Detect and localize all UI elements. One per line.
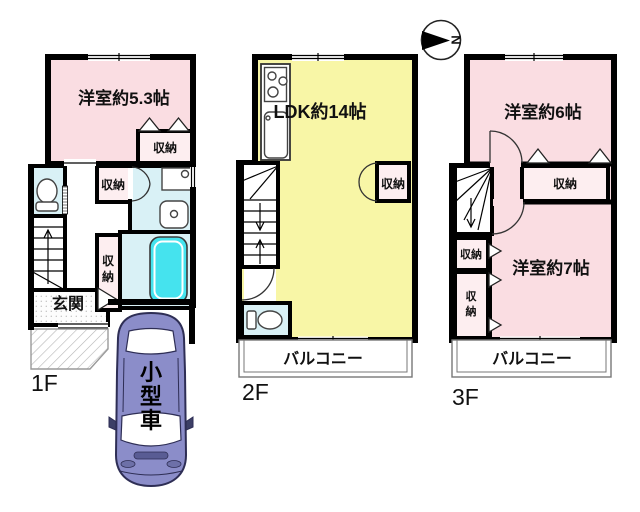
room-label-bedroom-1f: 洋室約5.3帖	[78, 88, 170, 108]
stairs-3f	[455, 166, 492, 234]
porch	[31, 329, 108, 369]
room-label-bedroom7: 洋室約7帖	[512, 258, 589, 278]
toilet-icon	[258, 311, 282, 329]
floor-label-3f: 3F	[452, 384, 479, 410]
toilet-tank	[247, 311, 256, 329]
floor-label-1f: 1F	[31, 370, 58, 396]
hall-2f	[244, 269, 276, 301]
room-label-bedroom6: 洋室約6帖	[504, 102, 581, 122]
car-illustration: 小型車	[109, 313, 193, 486]
car-headlight	[121, 461, 135, 468]
window	[190, 167, 196, 187]
garage-wall	[189, 302, 195, 344]
balcony-label-2f: バルコニー	[283, 350, 363, 368]
closet-label: 収納	[101, 177, 125, 192]
closet-label: 収納	[381, 176, 405, 191]
entrance-label: 玄関	[52, 294, 84, 313]
balcony-label-3f: バルコニー	[492, 350, 572, 368]
window	[505, 53, 563, 61]
car-rear-window	[126, 329, 176, 355]
floor-3f: 洋室約6帖 収納 収納 収納 洋室約7帖 バルコニー 3F	[452, 53, 614, 410]
toilet-door	[63, 186, 68, 214]
room-3f-closet-lower	[455, 272, 488, 338]
compass-north-label: N	[449, 35, 464, 44]
car-label: 小型車	[140, 360, 162, 433]
closet-label: 収納	[553, 176, 577, 191]
floor-label-2f: 2F	[242, 379, 269, 405]
faucet-icon	[182, 171, 189, 178]
floor-plan-drawing: 洋室約5.3帖 収納 収納 収納 玄関 1F	[0, 0, 640, 512]
car-headlight	[167, 461, 181, 468]
window	[292, 53, 344, 61]
floor-2f: LDK約14帖 収納 バルコニー 2F	[239, 53, 415, 405]
door-opening	[128, 168, 133, 199]
room-label-ldk: LDK約14帖	[273, 101, 366, 122]
car-grille	[134, 452, 168, 459]
door-opening	[490, 160, 521, 167]
toilet-tank	[36, 202, 58, 211]
toilet-icon	[37, 179, 57, 203]
window	[88, 53, 150, 61]
closet-label: 収納	[460, 247, 482, 261]
closet-label: 収納	[153, 140, 177, 155]
drain-icon	[171, 211, 178, 218]
door-opening	[493, 199, 523, 206]
floor-plan-page: 洋室約5.3帖 収納 収納 収納 玄関 1F	[0, 0, 640, 512]
compass-icon: N	[422, 21, 464, 60]
